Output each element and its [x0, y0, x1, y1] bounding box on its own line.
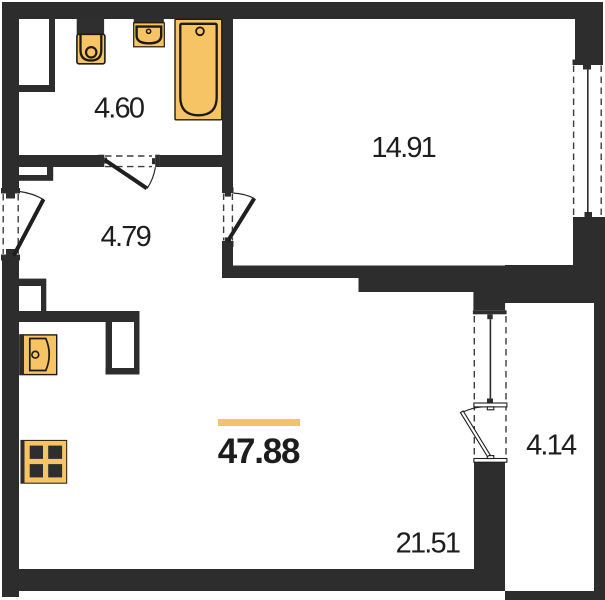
- svg-text:47.88: 47.88: [218, 432, 300, 471]
- svg-text:4.79: 4.79: [101, 221, 151, 253]
- svg-text:21.51: 21.51: [396, 528, 460, 560]
- svg-text:4.14: 4.14: [526, 430, 577, 462]
- svg-text:4.60: 4.60: [94, 93, 144, 125]
- svg-text:14.91: 14.91: [371, 132, 435, 164]
